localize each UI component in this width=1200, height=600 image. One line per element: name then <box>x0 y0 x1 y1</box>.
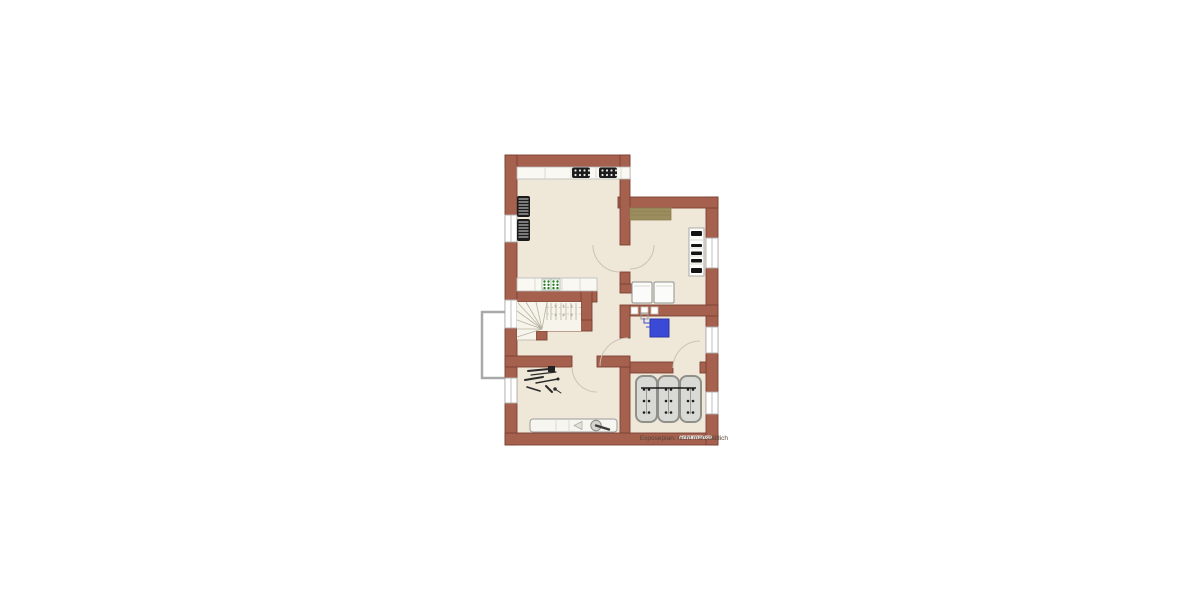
wall-stub-foot <box>620 284 633 293</box>
kitchen-counter-top <box>517 167 630 179</box>
floor-plan-svg <box>0 0 1200 600</box>
wall-top-left <box>505 155 630 167</box>
oil-tanks <box>636 376 701 422</box>
wall-top-right <box>618 197 718 208</box>
radiator-icon <box>517 219 530 241</box>
hob-icon <box>572 168 590 179</box>
shelf-unit <box>689 228 704 276</box>
kitchen-counter-bottom <box>517 278 597 291</box>
floorplan-page: Exposeplan, nicht maßstäblich <box>0 0 1200 600</box>
workbench <box>530 419 617 432</box>
rug <box>630 208 671 220</box>
washing-machine-icon <box>654 282 674 303</box>
wall-hall-right <box>597 356 630 367</box>
radiator-icon <box>517 196 530 217</box>
wall-boilerroom-left <box>620 305 630 338</box>
wall-center-vertical <box>620 367 630 433</box>
hob-icon <box>599 168 617 179</box>
washing-machine-icon <box>632 282 652 303</box>
wall-stair-stub <box>536 331 547 340</box>
wall-stub <box>620 272 630 284</box>
plan-caption: Exposeplan, nicht maßstäblich <box>560 435 728 443</box>
light-shaft <box>482 312 506 378</box>
wall-hall-left <box>505 356 572 367</box>
wall-tankroom-stub <box>700 362 706 373</box>
wall-tankroom-top <box>630 362 673 373</box>
